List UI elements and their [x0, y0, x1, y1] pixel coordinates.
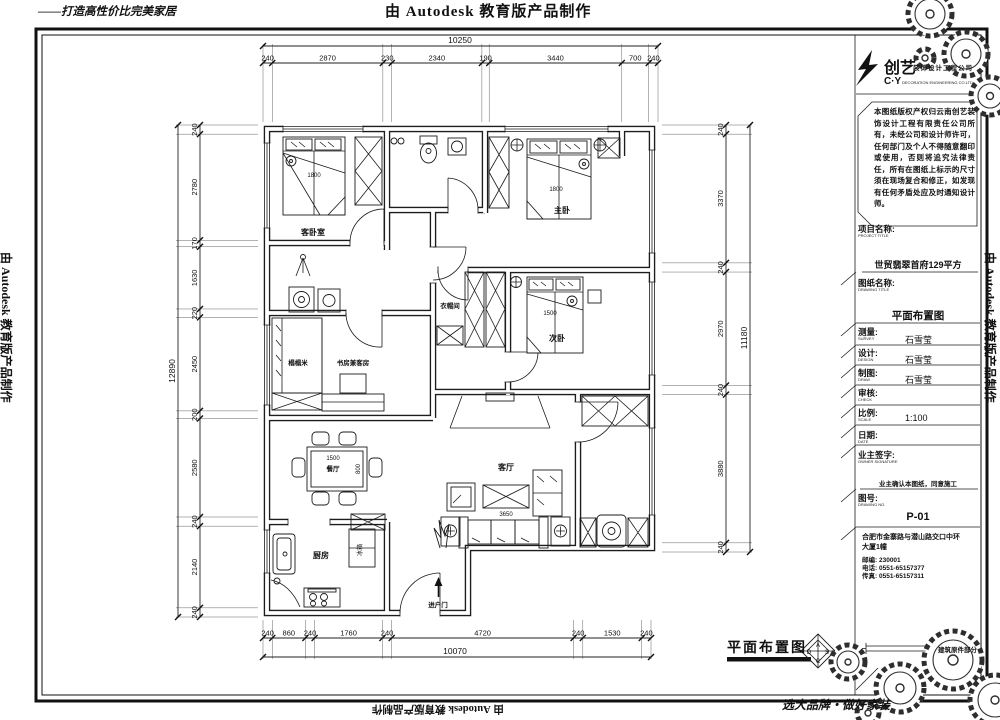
company-address-1: 合肥市金寨路与潜山路交口中环 — [862, 532, 960, 542]
svg-text:1760: 1760 — [340, 629, 357, 638]
company-fax: 传真: 0551-65157311 — [862, 570, 924, 580]
row-survey-value: 石雪莹 — [905, 333, 932, 346]
row-draw-en: DRAW — [858, 377, 870, 382]
row-draw-value: 石雪莹 — [905, 373, 932, 386]
svg-text:4720: 4720 — [474, 629, 491, 638]
svg-text:2780: 2780 — [190, 179, 199, 196]
company-address-2: 大厦1幢 — [862, 542, 887, 552]
drawing-no-value: P-01 — [858, 511, 978, 523]
balcony-fixtures — [597, 515, 626, 547]
tagline-top-left: ——打造高性价比完美家居 — [38, 3, 176, 19]
row-survey-en: SURVEY — [858, 336, 874, 341]
drawing-name: 平面布置图 — [858, 308, 978, 323]
svg-text:240: 240 — [304, 629, 317, 638]
svg-text:11180: 11180 — [739, 327, 749, 350]
svg-text:C: C — [816, 659, 821, 665]
owner-confirm-note: 业主确认本图纸，同意施工 — [858, 478, 978, 488]
room-label-study: 书房兼客房 — [337, 358, 370, 367]
svg-text:2450: 2450 — [190, 356, 199, 373]
svg-text:3370: 3370 — [716, 190, 725, 207]
dim-right-total: 11180 — [739, 122, 753, 555]
svg-text:240: 240 — [647, 54, 660, 63]
svg-text:1630: 1630 — [190, 270, 199, 287]
room-label-kitchen: 厨房 — [313, 550, 329, 560]
svg-text:1530: 1530 — [604, 629, 621, 638]
exterior-walls — [267, 129, 652, 613]
floorplan: 客卧室 主卧 次卧 衣帽间 榻榻米 书房兼客房 餐厅 厨房 客厅 进户门 冰箱 … — [263, 125, 656, 617]
svg-text:220: 220 — [190, 307, 199, 320]
dim-chain-left: 24027801701630220245020025802402140240 — [176, 122, 258, 620]
copyright-disclaimer: 本图纸版权产权归云南创艺装饰设计工程有限责任公司所有，未经公司和设计师许可，任何… — [874, 106, 975, 210]
company-name-big: 创艺 — [884, 54, 916, 78]
company-name-small: 装饰设计工程公司 — [913, 62, 973, 72]
svg-text:2340: 2340 — [428, 54, 445, 63]
dim-chain-top: 240287023023401903440700240 — [260, 44, 661, 122]
entry-arrow-icon — [435, 577, 443, 597]
interior-walls — [267, 129, 652, 613]
svg-text:240: 240 — [261, 629, 274, 638]
dim-top-total: 10250 — [260, 35, 661, 49]
svg-text:860: 860 — [283, 629, 296, 638]
svg-text:240: 240 — [381, 629, 394, 638]
room-label-dining: 餐厅 — [326, 464, 341, 473]
project-name: 世贸翡翠首府129平方 — [858, 258, 978, 271]
company-en: DECORATION ENGINEERING CO.LTD — [902, 80, 973, 85]
svg-text:240: 240 — [716, 123, 725, 136]
dim-left-total: 12890 — [167, 122, 181, 620]
room-label-second-bedroom: 次卧 — [549, 333, 565, 343]
bathroom-fixtures — [391, 136, 466, 163]
svg-text:3880: 3880 — [716, 460, 725, 477]
svg-text:10070: 10070 — [443, 646, 467, 656]
dim-guest-bed: 1800 — [307, 173, 321, 179]
dim-master-bed: 1800 — [549, 187, 563, 193]
room-label-cloakroom: 衣帽间 — [440, 301, 460, 310]
svg-text:S: S — [825, 650, 829, 656]
row-date-en: DATE — [858, 439, 868, 444]
svg-text:200: 200 — [190, 408, 199, 421]
svg-text:240: 240 — [190, 515, 199, 528]
svg-text:240: 240 — [640, 629, 653, 638]
dim-sofa: 3650 — [499, 512, 513, 518]
svg-text:170: 170 — [190, 237, 199, 250]
room-label-master-bedroom: 主卧 — [554, 205, 570, 215]
svg-text:240: 240 — [716, 541, 725, 554]
room-label-entry: 进户门 — [428, 600, 448, 609]
floorplan-canvas: 客卧室 主卧 次卧 衣帽间 榻榻米 书房兼客房 餐厅 厨房 客厅 进户门 冰箱 … — [0, 0, 1000, 720]
gear-decoration-top-right — [908, 0, 1000, 115]
svg-text:190: 190 — [479, 54, 492, 63]
svg-text:2580: 2580 — [190, 459, 199, 476]
row-scale-value: 1:100 — [905, 413, 928, 423]
watermark-top: 由 Autodesk 教育版产品制作 — [385, 0, 591, 21]
svg-text:240: 240 — [572, 629, 585, 638]
svg-text:240: 240 — [716, 261, 725, 274]
legend-label: 建筑原件部分 — [938, 644, 977, 654]
svg-text:D: D — [807, 650, 812, 656]
svg-text:12890: 12890 — [167, 359, 177, 383]
svg-text:A: A — [816, 643, 820, 649]
watermark-left: 由 Autodesk 教育版产品制作 — [0, 252, 15, 403]
row-design-en: DESIGN — [858, 357, 873, 362]
watermark-bottom: 由 Autodesk 教育版产品制作 — [372, 702, 504, 717]
dim-second-bed: 1500 — [543, 311, 557, 317]
room-label-tatami: 榻榻米 — [287, 358, 308, 367]
svg-text:240: 240 — [190, 123, 199, 136]
drawing-no-en: DRAWING NO. — [858, 502, 885, 507]
laundry-fixtures — [289, 255, 340, 313]
svg-text:240: 240 — [190, 606, 199, 619]
svg-text:240: 240 — [716, 384, 725, 397]
company-cy: C·Y — [884, 76, 901, 87]
row-check-en: CHECK — [858, 397, 872, 402]
row-design-value: 石雪莹 — [905, 353, 932, 366]
watermark-right: 由 Autodesk 教育版产品制作 — [982, 252, 999, 403]
cad-floorplan-page: 客卧室 主卧 次卧 衣帽间 榻榻米 书房兼客房 餐厅 厨房 客厅 进户门 冰箱 … — [0, 0, 1000, 720]
svg-text:700: 700 — [629, 54, 642, 63]
wardrobes-cabinets — [272, 137, 648, 547]
project-label-en: PROJECT TITLE — [858, 233, 889, 238]
dim-bottom-total: 10070 — [260, 646, 654, 660]
owner-label-en: OWNER SIGNATURE — [858, 459, 897, 464]
footer-plan-title: 平面布置图 — [727, 637, 807, 660]
row-scale-en: SCALE — [858, 417, 871, 422]
dim-dining-length: 1500 — [326, 456, 340, 462]
company-logo-mark — [856, 50, 878, 86]
tagline-bottom-right: 选大品牌・做好家装 — [782, 696, 890, 713]
drawing-label-en: DRAWING TITLE — [858, 287, 889, 292]
svg-text:10250: 10250 — [448, 35, 472, 45]
svg-text:230: 230 — [381, 54, 394, 63]
svg-text:2970: 2970 — [716, 320, 725, 337]
dim-dining-width: 800 — [356, 463, 362, 474]
svg-text:3440: 3440 — [547, 54, 564, 63]
svg-text:2140: 2140 — [190, 559, 199, 576]
svg-text:2870: 2870 — [319, 54, 336, 63]
label-fridge: 冰箱 — [356, 544, 364, 556]
room-label-living: 客厅 — [497, 462, 514, 472]
room-label-guest-bedroom: 客卧室 — [300, 227, 325, 237]
svg-text:240: 240 — [261, 54, 274, 63]
kitchen-fixtures — [271, 529, 375, 607]
